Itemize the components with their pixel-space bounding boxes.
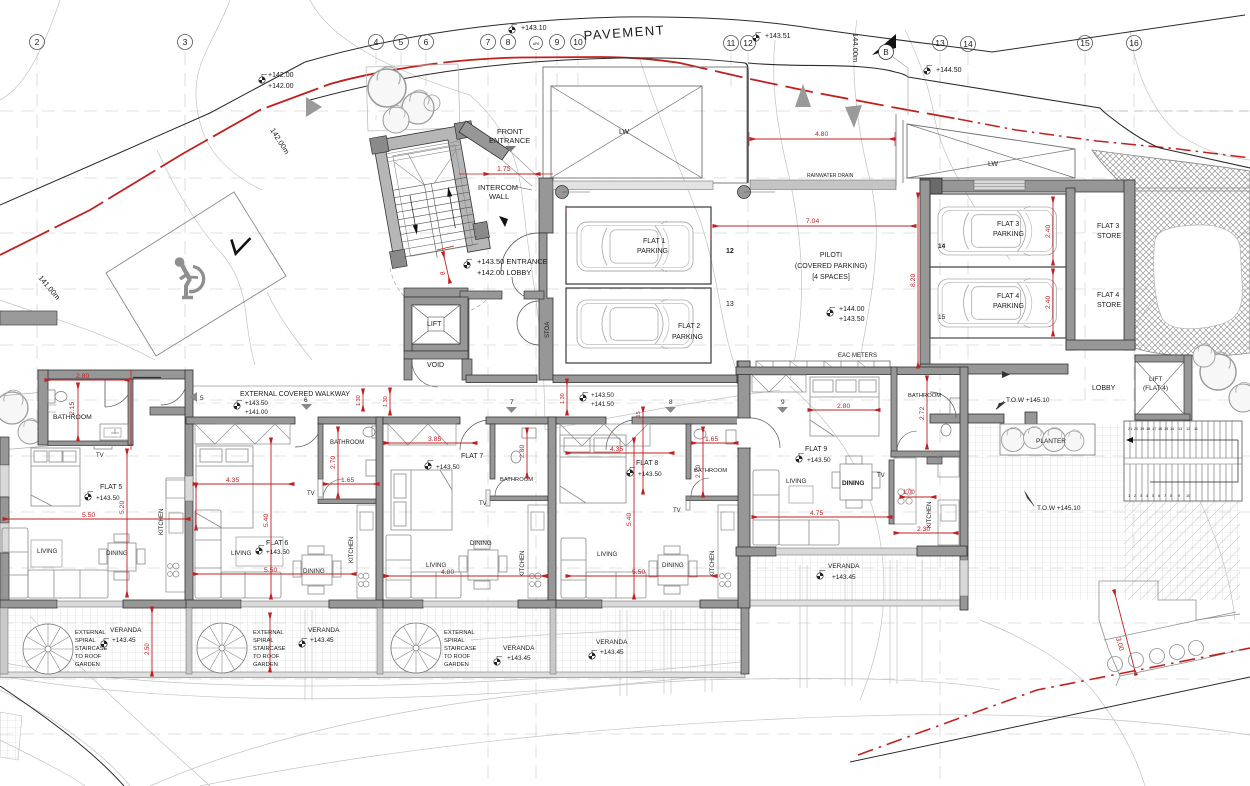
svg-text:STORE: STORE	[1097, 302, 1121, 309]
svg-text:INTERCOM: INTERCOM	[478, 183, 518, 192]
svg-text:+143.45: +143.45	[600, 649, 624, 656]
svg-text:+143.45: +143.45	[507, 655, 531, 662]
svg-text:KITCHEN: KITCHEN	[710, 551, 716, 577]
svg-text:GARDEN: GARDEN	[444, 662, 469, 668]
svg-text:5.40: 5.40	[626, 513, 633, 526]
svg-text:+144.50: +144.50	[936, 67, 962, 74]
svg-text:FLAT 2: FLAT 2	[678, 323, 700, 330]
svg-text:13: 13	[935, 38, 945, 48]
svg-text:PARKING: PARKING	[993, 303, 1024, 310]
svg-text:14: 14	[1170, 427, 1174, 431]
svg-text:FLAT 3: FLAT 3	[1097, 223, 1119, 230]
svg-text:+142.00: +142.00	[268, 72, 294, 79]
svg-text:1.65: 1.65	[705, 436, 718, 443]
svg-text:VERANDA: VERANDA	[503, 645, 535, 652]
svg-text:14: 14	[938, 243, 946, 250]
svg-text:FLAT 4: FLAT 4	[1097, 292, 1119, 299]
svg-text:1.65: 1.65	[341, 477, 354, 484]
svg-text:LW: LW	[988, 161, 998, 168]
svg-text:2.40: 2.40	[1045, 225, 1052, 238]
svg-text:6: 6	[304, 397, 308, 404]
svg-text:FLAT 7: FLAT 7	[461, 453, 483, 460]
svg-text:+143.45: +143.45	[310, 637, 334, 644]
svg-text:4.75: 4.75	[810, 510, 823, 517]
svg-text:STOA: STOA	[545, 322, 551, 338]
svg-text:DINING: DINING	[106, 550, 128, 557]
svg-text:ENTRANCE: ENTRANCE	[489, 136, 530, 145]
svg-text:7: 7	[510, 399, 514, 406]
svg-text:+142.00: +142.00	[268, 83, 294, 90]
svg-text:+143.50: +143.50	[266, 549, 290, 556]
svg-text:T.O.W +145.10: T.O.W +145.10	[1006, 397, 1050, 404]
svg-text:LIVING: LIVING	[231, 550, 251, 557]
svg-text:(COVERED PARKING): (COVERED PARKING)	[795, 263, 867, 270]
svg-text:(FLAT 4): (FLAT 4)	[1143, 385, 1168, 392]
svg-text:13: 13	[1178, 427, 1182, 431]
svg-text:+144.00: +144.00	[839, 306, 865, 313]
svg-text:+143.50: +143.50	[591, 392, 614, 399]
svg-text:FLAT 6: FLAT 6	[266, 540, 288, 547]
svg-text:PARKING: PARKING	[637, 248, 668, 255]
svg-text:EXTERNAL: EXTERNAL	[75, 630, 106, 636]
svg-text:FLAT 5: FLAT 5	[100, 484, 122, 491]
svg-text:SPIRAL: SPIRAL	[75, 638, 96, 644]
svg-text:2.15: 2.15	[69, 402, 76, 415]
svg-text:21: 21	[1128, 427, 1132, 431]
svg-text:EXTERNAL: EXTERNAL	[253, 630, 284, 636]
svg-text:LIVING: LIVING	[426, 562, 446, 569]
svg-text:PLANTER: PLANTER	[1036, 438, 1066, 445]
svg-text:8: 8	[506, 37, 511, 47]
svg-text:STORE: STORE	[1097, 233, 1121, 240]
svg-text:2.30: 2.30	[917, 526, 930, 533]
svg-text:TO ROOF: TO ROOF	[253, 654, 280, 660]
svg-text:144.00m: 144.00m	[851, 33, 860, 62]
svg-text:WALL: WALL	[489, 192, 509, 201]
svg-text:[4 SPACES]: [4 SPACES]	[812, 274, 850, 281]
svg-text:2.80: 2.80	[837, 403, 850, 410]
svg-text:1.75: 1.75	[497, 166, 511, 173]
svg-text:3: 3	[183, 37, 188, 47]
svg-text:11: 11	[727, 38, 736, 48]
svg-text:2.70: 2.70	[330, 456, 337, 469]
svg-text:4.35: 4.35	[610, 446, 623, 453]
svg-text:12: 12	[726, 248, 734, 255]
svg-text:+143.50: +143.50	[839, 316, 865, 323]
svg-text:4.80: 4.80	[441, 569, 454, 576]
svg-text:7: 7	[1164, 494, 1166, 498]
svg-text:14: 14	[963, 39, 973, 49]
svg-text:+143.10: +143.10	[521, 25, 547, 32]
svg-text:LW: LW	[619, 129, 629, 136]
svg-text:15: 15	[1080, 38, 1090, 48]
svg-text:+143.45: +143.45	[112, 637, 136, 644]
svg-text:16: 16	[1129, 38, 1139, 48]
svg-text:+143.50: +143.50	[807, 457, 831, 464]
svg-text:9: 9	[1178, 494, 1180, 498]
svg-text:EXTERNAL COVERED WALKWAY: EXTERNAL COVERED WALKWAY	[240, 391, 350, 398]
svg-text:RAINWATER DRAIN: RAINWATER DRAIN	[807, 173, 854, 179]
svg-text:FLAT 4: FLAT 4	[997, 293, 1019, 300]
svg-text:+141.50: +141.50	[591, 401, 614, 408]
svg-text:5: 5	[1152, 494, 1154, 498]
svg-text:5: 5	[200, 395, 204, 402]
svg-text:+143.45: +143.45	[832, 574, 856, 581]
svg-text:BATHROOM: BATHROOM	[330, 440, 364, 446]
svg-text:5.20: 5.20	[119, 501, 126, 514]
svg-text:+143.50: +143.50	[638, 471, 662, 478]
svg-text:4.35: 4.35	[226, 477, 239, 484]
svg-text:+143.50: +143.50	[96, 495, 120, 502]
svg-text:1.30: 1.30	[383, 396, 389, 407]
svg-text:PILOTI: PILOTI	[820, 252, 842, 259]
svg-text:TO ROOF: TO ROOF	[444, 654, 471, 660]
svg-text:TV: TV	[307, 491, 315, 497]
svg-text:15: 15	[938, 314, 946, 321]
svg-text:2.40: 2.40	[1045, 296, 1052, 309]
svg-text:AP6: AP6	[533, 42, 540, 46]
svg-text:7.04: 7.04	[806, 218, 819, 225]
svg-text:KITCHEN: KITCHEN	[520, 551, 526, 577]
svg-text:FRONT: FRONT	[497, 127, 523, 136]
svg-text:PARKING: PARKING	[993, 231, 1024, 238]
svg-text:GARDEN: GARDEN	[253, 662, 278, 668]
svg-text:10: 10	[573, 37, 583, 47]
svg-text:+143.50 ENTRANCE: +143.50 ENTRANCE	[477, 257, 548, 266]
svg-text:STAIRCASE: STAIRCASE	[444, 646, 477, 652]
svg-text:DINING: DINING	[842, 480, 864, 487]
svg-text:DINING: DINING	[662, 562, 684, 569]
svg-text:6: 6	[424, 37, 429, 47]
svg-text:8.20: 8.20	[910, 274, 917, 287]
svg-text:19: 19	[1140, 427, 1144, 431]
svg-text:LIVING: LIVING	[786, 478, 806, 485]
svg-text:TV: TV	[479, 501, 487, 507]
svg-text:5.50: 5.50	[264, 567, 277, 574]
svg-text:1.00: 1.00	[903, 490, 915, 496]
svg-text:FLAT 3: FLAT 3	[997, 221, 1019, 228]
svg-text:+143.51: +143.51	[765, 33, 791, 40]
svg-text:2: 2	[1134, 494, 1136, 498]
svg-text:TO ROOF: TO ROOF	[75, 654, 102, 660]
svg-text:4.80: 4.80	[815, 131, 828, 138]
svg-text:VERANDA: VERANDA	[308, 627, 340, 634]
svg-text:+143.50: +143.50	[436, 464, 460, 471]
svg-text:6: 6	[1158, 494, 1160, 498]
svg-text:2.72: 2.72	[919, 407, 926, 420]
svg-text:3.85: 3.85	[428, 436, 441, 443]
svg-text:12: 12	[1186, 427, 1190, 431]
svg-text:EXTERNAL: EXTERNAL	[444, 630, 475, 636]
svg-text:2.80: 2.80	[76, 373, 89, 380]
svg-text:FLAT 8: FLAT 8	[636, 460, 658, 467]
svg-text:+142.00 LOBBY: +142.00 LOBBY	[477, 268, 531, 277]
svg-text:SPIRAL: SPIRAL	[444, 638, 465, 644]
svg-text:TV: TV	[877, 473, 885, 479]
svg-text:20: 20	[1134, 427, 1138, 431]
svg-text:5.40: 5.40	[263, 514, 270, 527]
svg-text:GARDEN: GARDEN	[75, 662, 100, 668]
svg-text:SPIRAL: SPIRAL	[253, 638, 274, 644]
svg-text:1.30: 1.30	[356, 395, 362, 406]
svg-text:+141.00: +141.00	[245, 409, 268, 416]
svg-text:1.30: 1.30	[560, 393, 566, 404]
svg-text:TV: TV	[96, 453, 104, 459]
svg-text:15: 15	[1164, 427, 1168, 431]
svg-text:5.50: 5.50	[82, 512, 95, 519]
svg-text:8: 8	[1170, 494, 1172, 498]
svg-text:7: 7	[486, 37, 491, 47]
svg-text:8: 8	[669, 399, 673, 406]
svg-text:2.70: 2.70	[695, 465, 702, 478]
svg-text:2.50: 2.50	[145, 643, 151, 655]
svg-text:VOID: VOID	[427, 362, 444, 369]
svg-text:STAIRCASE: STAIRCASE	[253, 646, 286, 652]
svg-text:LIVING: LIVING	[597, 551, 617, 558]
svg-text:LIFT: LIFT	[427, 321, 442, 328]
svg-text:B: B	[883, 48, 888, 57]
svg-text:5.50: 5.50	[632, 569, 645, 576]
svg-text:LOBBY: LOBBY	[1092, 385, 1116, 392]
svg-text:1: 1	[1128, 494, 1130, 498]
svg-text:18: 18	[1146, 427, 1150, 431]
svg-text:5: 5	[399, 37, 404, 47]
svg-text:2: 2	[35, 37, 40, 47]
svg-text:9: 9	[555, 37, 560, 47]
svg-text:13: 13	[726, 301, 734, 308]
svg-text:TV: TV	[673, 508, 681, 514]
svg-text:EAC METERS: EAC METERS	[838, 353, 877, 359]
svg-text:12: 12	[743, 38, 753, 48]
svg-text:+143.50: +143.50	[245, 400, 268, 407]
svg-text:17: 17	[1152, 427, 1156, 431]
svg-text:FLAT 9: FLAT 9	[805, 446, 827, 453]
svg-text:FLAT 1: FLAT 1	[643, 238, 665, 245]
svg-text:4: 4	[374, 37, 379, 47]
svg-text:DINING: DINING	[470, 540, 492, 547]
svg-text:LIVING: LIVING	[37, 548, 57, 555]
svg-text:11: 11	[1194, 427, 1198, 431]
svg-text:.15: .15	[636, 411, 642, 419]
svg-text:10: 10	[1186, 494, 1190, 498]
svg-text:PARKING: PARKING	[672, 334, 703, 341]
svg-text:9: 9	[781, 399, 785, 406]
svg-text:2.80: 2.80	[519, 445, 526, 458]
svg-text:VERANDA: VERANDA	[596, 639, 628, 646]
svg-text:T.O.W +145.10: T.O.W +145.10	[1037, 505, 1081, 512]
svg-text:VERANDA: VERANDA	[828, 563, 860, 570]
svg-text:KITCHEN: KITCHEN	[159, 509, 165, 535]
svg-text:4: 4	[1146, 494, 1148, 498]
svg-text:KITCHEN: KITCHEN	[349, 537, 355, 563]
svg-text:KITCHEN: KITCHEN	[927, 502, 933, 528]
svg-text:16: 16	[1158, 427, 1162, 431]
svg-text:3: 3	[1140, 494, 1142, 498]
svg-text:VERANDA: VERANDA	[110, 627, 142, 634]
svg-text:BATHROOM: BATHROOM	[908, 393, 941, 399]
svg-text:LIFT: LIFT	[1149, 376, 1162, 383]
